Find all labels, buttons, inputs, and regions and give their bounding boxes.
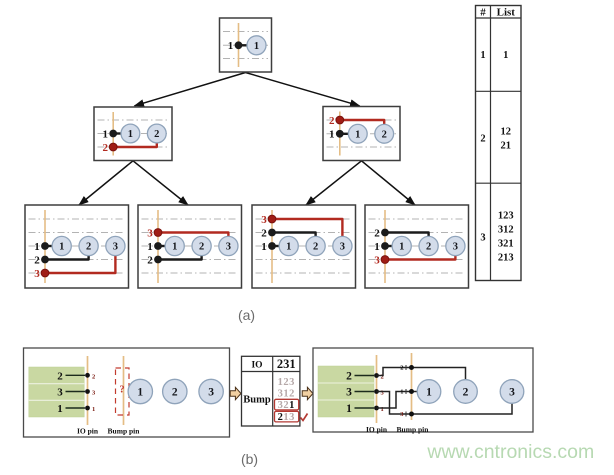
- svg-text:www.cntronics.com: www.cntronics.com: [426, 441, 594, 463]
- svg-text:2: 2: [147, 254, 153, 266]
- svg-text:1: 1: [92, 406, 95, 413]
- svg-text:1: 1: [355, 129, 360, 140]
- svg-text:#: #: [480, 7, 486, 19]
- svg-text:1: 1: [59, 242, 64, 253]
- svg-text:2: 2: [346, 371, 352, 383]
- svg-text:213: 213: [278, 412, 295, 423]
- svg-text:321: 321: [498, 239, 514, 250]
- svg-text:IO pin: IO pin: [366, 425, 388, 434]
- svg-text:2: 2: [102, 142, 108, 154]
- svg-text:1: 1: [261, 241, 267, 253]
- svg-text:2: 2: [92, 373, 95, 380]
- svg-text:21: 21: [501, 141, 512, 152]
- svg-text:231: 231: [277, 357, 296, 371]
- svg-text:1: 1: [426, 387, 432, 399]
- svg-text:213: 213: [498, 253, 514, 264]
- svg-text:Bump pin: Bump pin: [397, 425, 430, 434]
- svg-text:3: 3: [147, 227, 153, 239]
- svg-text:1: 1: [346, 403, 352, 415]
- svg-text:2: 2: [382, 129, 387, 140]
- svg-text:123: 123: [278, 377, 295, 388]
- svg-text:1: 1: [400, 389, 403, 396]
- svg-text:1: 1: [128, 129, 133, 140]
- svg-text:3: 3: [113, 242, 118, 253]
- svg-text:1: 1: [329, 129, 335, 141]
- svg-text:2: 2: [57, 370, 63, 382]
- svg-text:3: 3: [453, 242, 458, 253]
- svg-text:(a): (a): [238, 307, 255, 323]
- svg-text:2: 2: [400, 365, 403, 372]
- svg-text:312: 312: [498, 225, 514, 236]
- svg-text:3: 3: [480, 233, 485, 244]
- svg-text:1: 1: [254, 41, 259, 52]
- svg-text:1: 1: [399, 242, 404, 253]
- svg-text:12: 12: [501, 127, 512, 138]
- svg-text:1: 1: [286, 242, 291, 253]
- svg-text:1: 1: [147, 241, 153, 253]
- svg-text:1: 1: [137, 387, 143, 399]
- svg-text:IO: IO: [251, 360, 262, 370]
- svg-text:2: 2: [480, 134, 485, 145]
- svg-text:2: 2: [313, 242, 318, 253]
- svg-text:2: 2: [86, 242, 91, 253]
- svg-text:2: 2: [426, 242, 431, 253]
- svg-text:3: 3: [340, 242, 345, 253]
- svg-text:2: 2: [374, 227, 380, 239]
- svg-text:2: 2: [172, 387, 178, 399]
- svg-text:3: 3: [509, 387, 515, 399]
- svg-text:List: List: [497, 7, 516, 19]
- svg-text:2: 2: [463, 387, 469, 399]
- svg-text:IO pin: IO pin: [77, 427, 99, 436]
- svg-text:1: 1: [228, 40, 234, 52]
- svg-text:2: 2: [199, 242, 204, 253]
- svg-text:3: 3: [261, 214, 267, 226]
- svg-text:1: 1: [172, 242, 177, 253]
- svg-text:2: 2: [154, 129, 159, 140]
- svg-text:3: 3: [226, 242, 231, 253]
- svg-text:2: 2: [34, 254, 40, 266]
- svg-text:1: 1: [102, 128, 108, 140]
- svg-text:1: 1: [381, 406, 384, 413]
- svg-text:1: 1: [57, 403, 63, 415]
- svg-text:Bump: Bump: [243, 395, 271, 406]
- svg-text:3: 3: [208, 387, 214, 399]
- svg-text:3: 3: [346, 387, 352, 399]
- svg-text:2: 2: [329, 115, 335, 127]
- svg-text:3: 3: [57, 387, 63, 399]
- svg-text:(b): (b): [241, 451, 258, 467]
- svg-text:123: 123: [498, 211, 514, 222]
- svg-text:1: 1: [480, 50, 485, 61]
- svg-text:3: 3: [34, 268, 40, 280]
- svg-text:1: 1: [374, 241, 380, 253]
- svg-text:2: 2: [261, 227, 267, 239]
- svg-text:1: 1: [503, 50, 508, 61]
- svg-text:?: ?: [119, 385, 124, 396]
- svg-text:312: 312: [278, 389, 295, 400]
- svg-text:321: 321: [278, 400, 295, 411]
- svg-text:1: 1: [34, 241, 40, 253]
- svg-text:Bump pin: Bump pin: [108, 427, 141, 436]
- svg-text:3: 3: [374, 254, 380, 266]
